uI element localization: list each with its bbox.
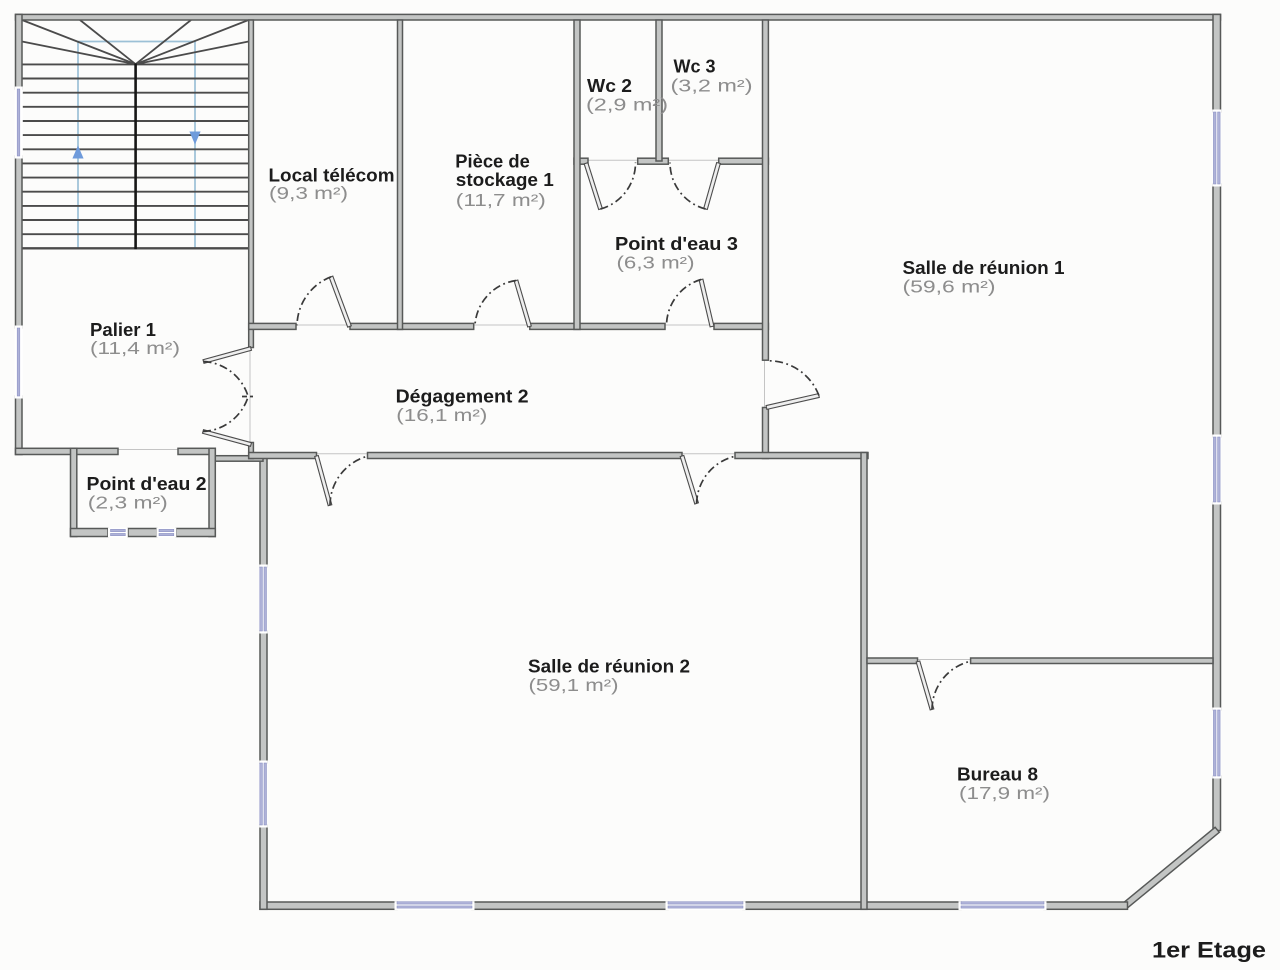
svg-text:Pièce de: Pièce de: [455, 151, 530, 171]
svg-text:Dégagement 2: Dégagement 2: [396, 387, 529, 407]
svg-text:1er Etage: 1er Etage: [1152, 938, 1266, 963]
svg-text:Point d'eau 3: Point d'eau 3: [615, 234, 738, 254]
svg-text:(6,3 m²): (6,3 m²): [617, 253, 695, 273]
svg-text:(11,7 m²): (11,7 m²): [456, 190, 546, 210]
svg-text:Bureau 8: Bureau 8: [957, 765, 1038, 785]
svg-text:Salle de réunion 1: Salle de réunion 1: [903, 258, 1065, 278]
svg-text:(17,9 m²): (17,9 m²): [959, 783, 1050, 803]
svg-text:Salle de réunion 2: Salle de réunion 2: [528, 657, 690, 677]
svg-text:(2,9 m²): (2,9 m²): [586, 95, 668, 115]
svg-text:(59,6 m²): (59,6 m²): [903, 277, 996, 297]
svg-text:Palier 1: Palier 1: [90, 320, 156, 340]
svg-text:(59,1 m²): (59,1 m²): [529, 675, 619, 695]
svg-text:Wc 3: Wc 3: [674, 57, 716, 77]
svg-text:stockage 1: stockage 1: [456, 170, 554, 190]
svg-text:(16,1 m²): (16,1 m²): [396, 405, 487, 425]
svg-text:Wc 2: Wc 2: [587, 76, 632, 96]
svg-text:(9,3 m²): (9,3 m²): [269, 183, 348, 203]
svg-text:(2,3 m²): (2,3 m²): [88, 493, 168, 513]
svg-text:(3,2 m²): (3,2 m²): [671, 76, 753, 96]
svg-text:(11,4 m²): (11,4 m²): [90, 338, 180, 358]
svg-text:Point d'eau 2: Point d'eau 2: [87, 474, 207, 494]
